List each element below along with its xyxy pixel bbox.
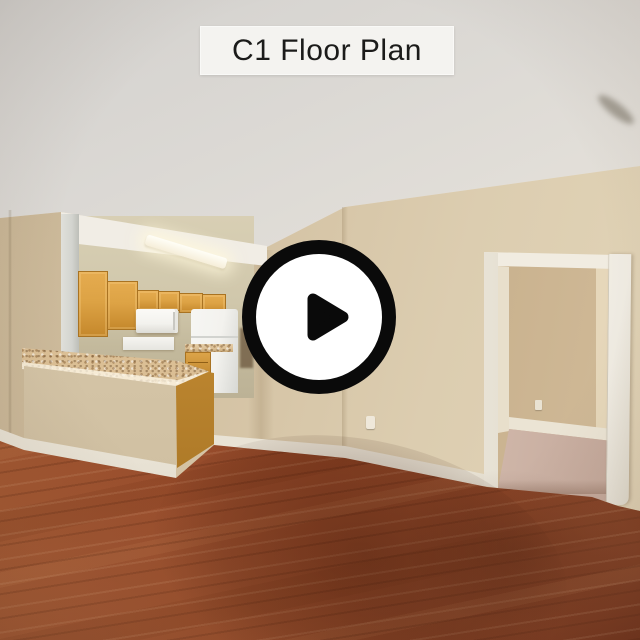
floor-plan-banner: C1 Floor Plan xyxy=(200,26,454,75)
floor-plan-title: C1 Floor Plan xyxy=(232,34,422,68)
video-tour-thumbnail[interactable]: C1 Floor Plan xyxy=(0,0,640,640)
play-icon[interactable] xyxy=(289,282,359,352)
play-button[interactable] xyxy=(242,240,396,394)
